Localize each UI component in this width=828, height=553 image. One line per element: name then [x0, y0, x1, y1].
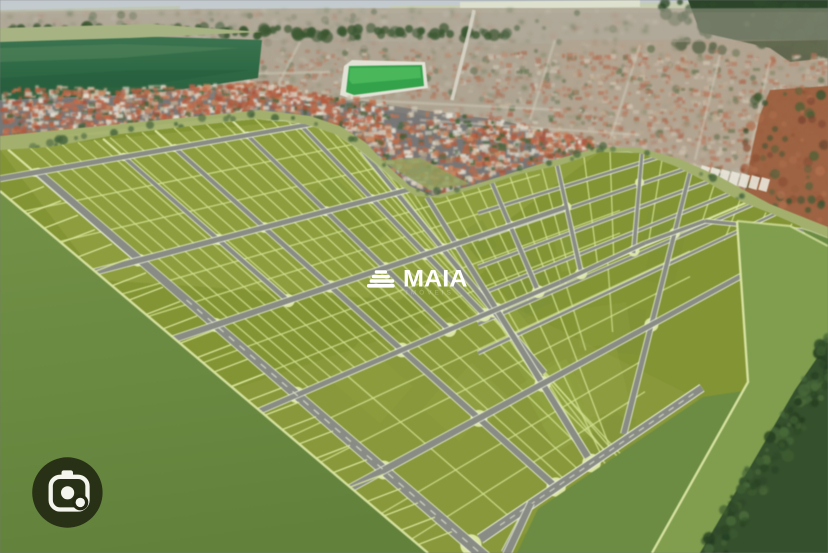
- svg-text:IMÓVEIS: IMÓVEIS: [406, 288, 454, 297]
- svg-text:MAIA: MAIA: [403, 266, 468, 293]
